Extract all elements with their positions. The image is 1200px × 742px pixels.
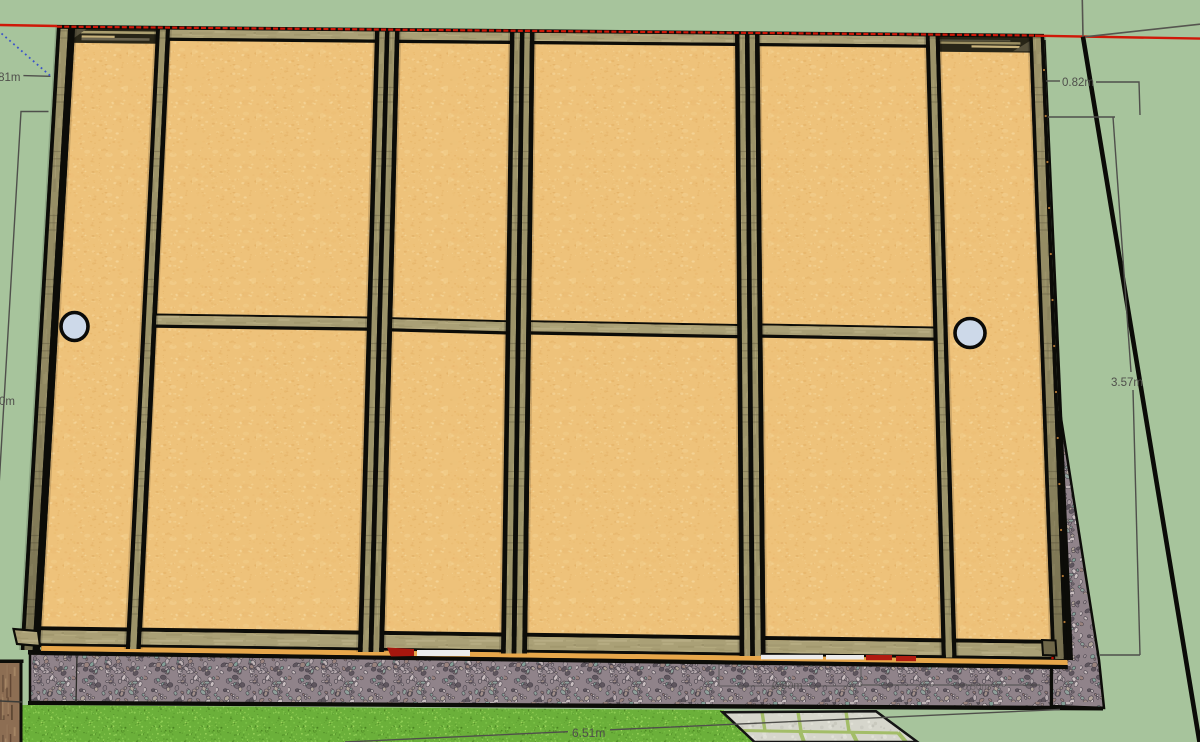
svg-text:0.82m: 0.82m [1062,77,1094,89]
svg-text:3.50m: 3.50m [0,396,15,408]
svg-text:6.51m: 6.51m [572,726,605,740]
svg-text:0.81m: 0.81m [0,72,21,84]
svg-text:0.50m: 0.50m [962,682,990,693]
svg-text:0.90m: 0.90m [772,680,803,692]
svg-text:3.57m: 3.57m [1111,377,1143,389]
